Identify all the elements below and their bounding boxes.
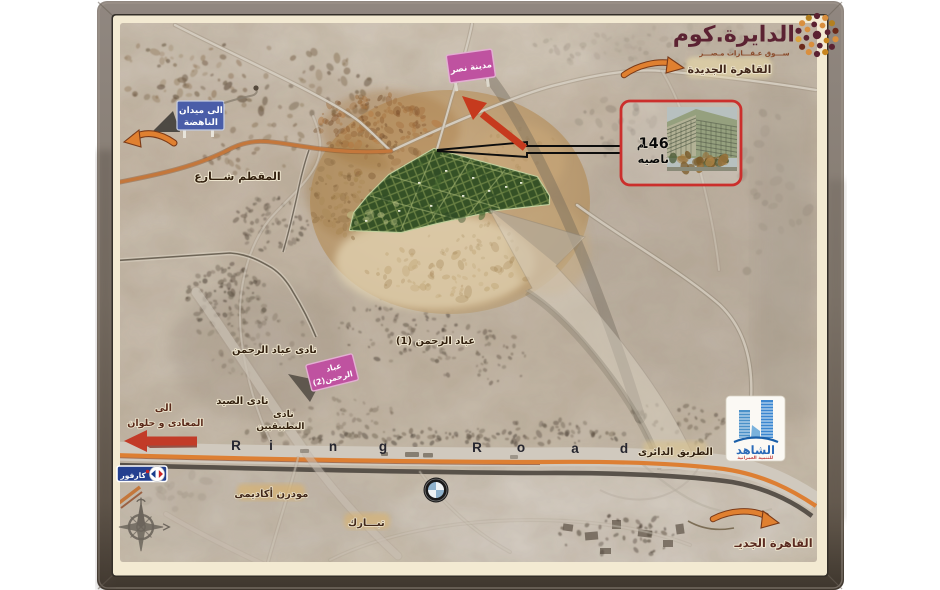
- svg-text:i: i: [269, 438, 273, 453]
- svg-text:o: o: [517, 440, 525, 455]
- svg-text:n: n: [329, 439, 337, 454]
- svg-text:g: g: [379, 439, 387, 454]
- svg-text:d: d: [620, 441, 628, 456]
- svg-text:R: R: [472, 440, 482, 455]
- svg-text:a: a: [571, 441, 579, 456]
- svg-text:R: R: [231, 438, 241, 453]
